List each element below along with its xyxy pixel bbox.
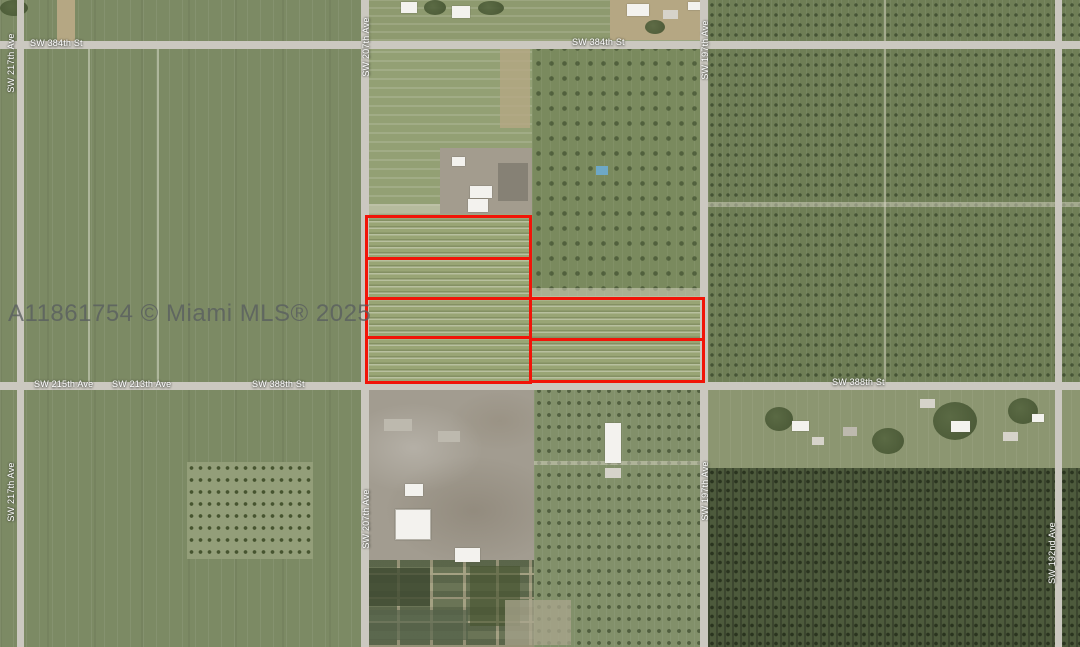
field-boundary-line — [157, 41, 159, 390]
farm-building — [605, 468, 621, 478]
parcel-outline — [365, 297, 532, 339]
nursery-plot — [368, 568, 430, 606]
bare-field-patch — [500, 48, 530, 128]
shed-building — [384, 419, 412, 431]
street-label-sw-217th-ave: SW 217th Ave — [6, 462, 16, 521]
dirt-farmyard — [362, 385, 534, 565]
orchard-trail — [708, 202, 1080, 207]
house-roof — [452, 6, 470, 18]
street-label-sw-197th-ave: SW 197th Ave — [700, 20, 710, 79]
greenhouse-building — [605, 423, 621, 463]
farm-building — [405, 484, 423, 496]
street-label-sw-384th-st: SW 384th St — [572, 37, 625, 47]
dirt-path — [532, 288, 704, 297]
street-label-sw-384th-st: SW 384th St — [30, 38, 83, 48]
street-label-sw-215th-ave: SW 215th Ave — [34, 379, 93, 389]
house-roof — [627, 4, 649, 16]
parcel-outline — [365, 215, 532, 260]
street-label-sw-217th-ave: SW 217th Ave — [6, 33, 16, 92]
farm-building — [470, 186, 492, 198]
farm-building — [468, 199, 488, 212]
tree-clump — [424, 0, 446, 15]
street-label-sw-388th-st: SW 388th St — [832, 377, 885, 387]
shed-building — [438, 431, 460, 442]
orchard-trail — [884, 0, 886, 385]
aerial-map: SW 384th St SW 384th St SW 215th Ave SW … — [0, 0, 1080, 647]
parcel-outline — [529, 297, 705, 341]
orchard-northeast — [708, 0, 1080, 385]
warehouse-building — [395, 509, 431, 540]
street-label-sw-207th-ave: SW 207th Ave — [361, 489, 371, 548]
house-roof — [401, 2, 417, 13]
orchard-block-southwest — [187, 462, 313, 559]
house-roof — [843, 427, 857, 436]
equipment-clutter — [498, 163, 528, 201]
barn-building — [455, 548, 480, 562]
house-roof — [663, 10, 678, 19]
house-roof — [688, 2, 700, 10]
road-sw-384th-st — [0, 41, 1080, 49]
grove-center — [532, 41, 704, 296]
tree-clump — [872, 428, 904, 454]
blue-tarp — [596, 166, 608, 175]
house-roof — [1032, 414, 1044, 422]
parcel-outline — [529, 338, 705, 383]
street-label-sw-207th-ave: SW 207th Ave — [361, 17, 371, 76]
street-label-sw-213th-ave: SW 213th Ave — [112, 379, 171, 389]
field-boundary-line — [88, 41, 90, 390]
farm-building — [452, 157, 465, 166]
street-label-sw-388th-st: SW 388th St — [252, 379, 305, 389]
house-roof — [1003, 432, 1018, 441]
parcel-outline — [365, 336, 532, 384]
nursery-plot — [368, 610, 468, 640]
house-roof — [812, 437, 824, 445]
house-roof — [920, 399, 935, 408]
parcel-outline — [365, 257, 532, 300]
nursery-plot-empty — [505, 600, 571, 645]
tree-clump — [478, 1, 504, 15]
mls-watermark: A11861754 © Miami MLS® 2025 — [8, 300, 371, 328]
bare-field-strip — [57, 0, 75, 41]
tree-clump — [765, 407, 793, 431]
street-label-sw-197th-ave: SW 197th Ave — [700, 461, 710, 520]
house-roof — [792, 421, 809, 431]
house-roof — [951, 421, 970, 432]
grove-southeast — [708, 468, 1080, 647]
street-label-sw-192nd-ave: SW 192nd Ave — [1047, 522, 1057, 584]
tree-clump — [645, 20, 665, 34]
